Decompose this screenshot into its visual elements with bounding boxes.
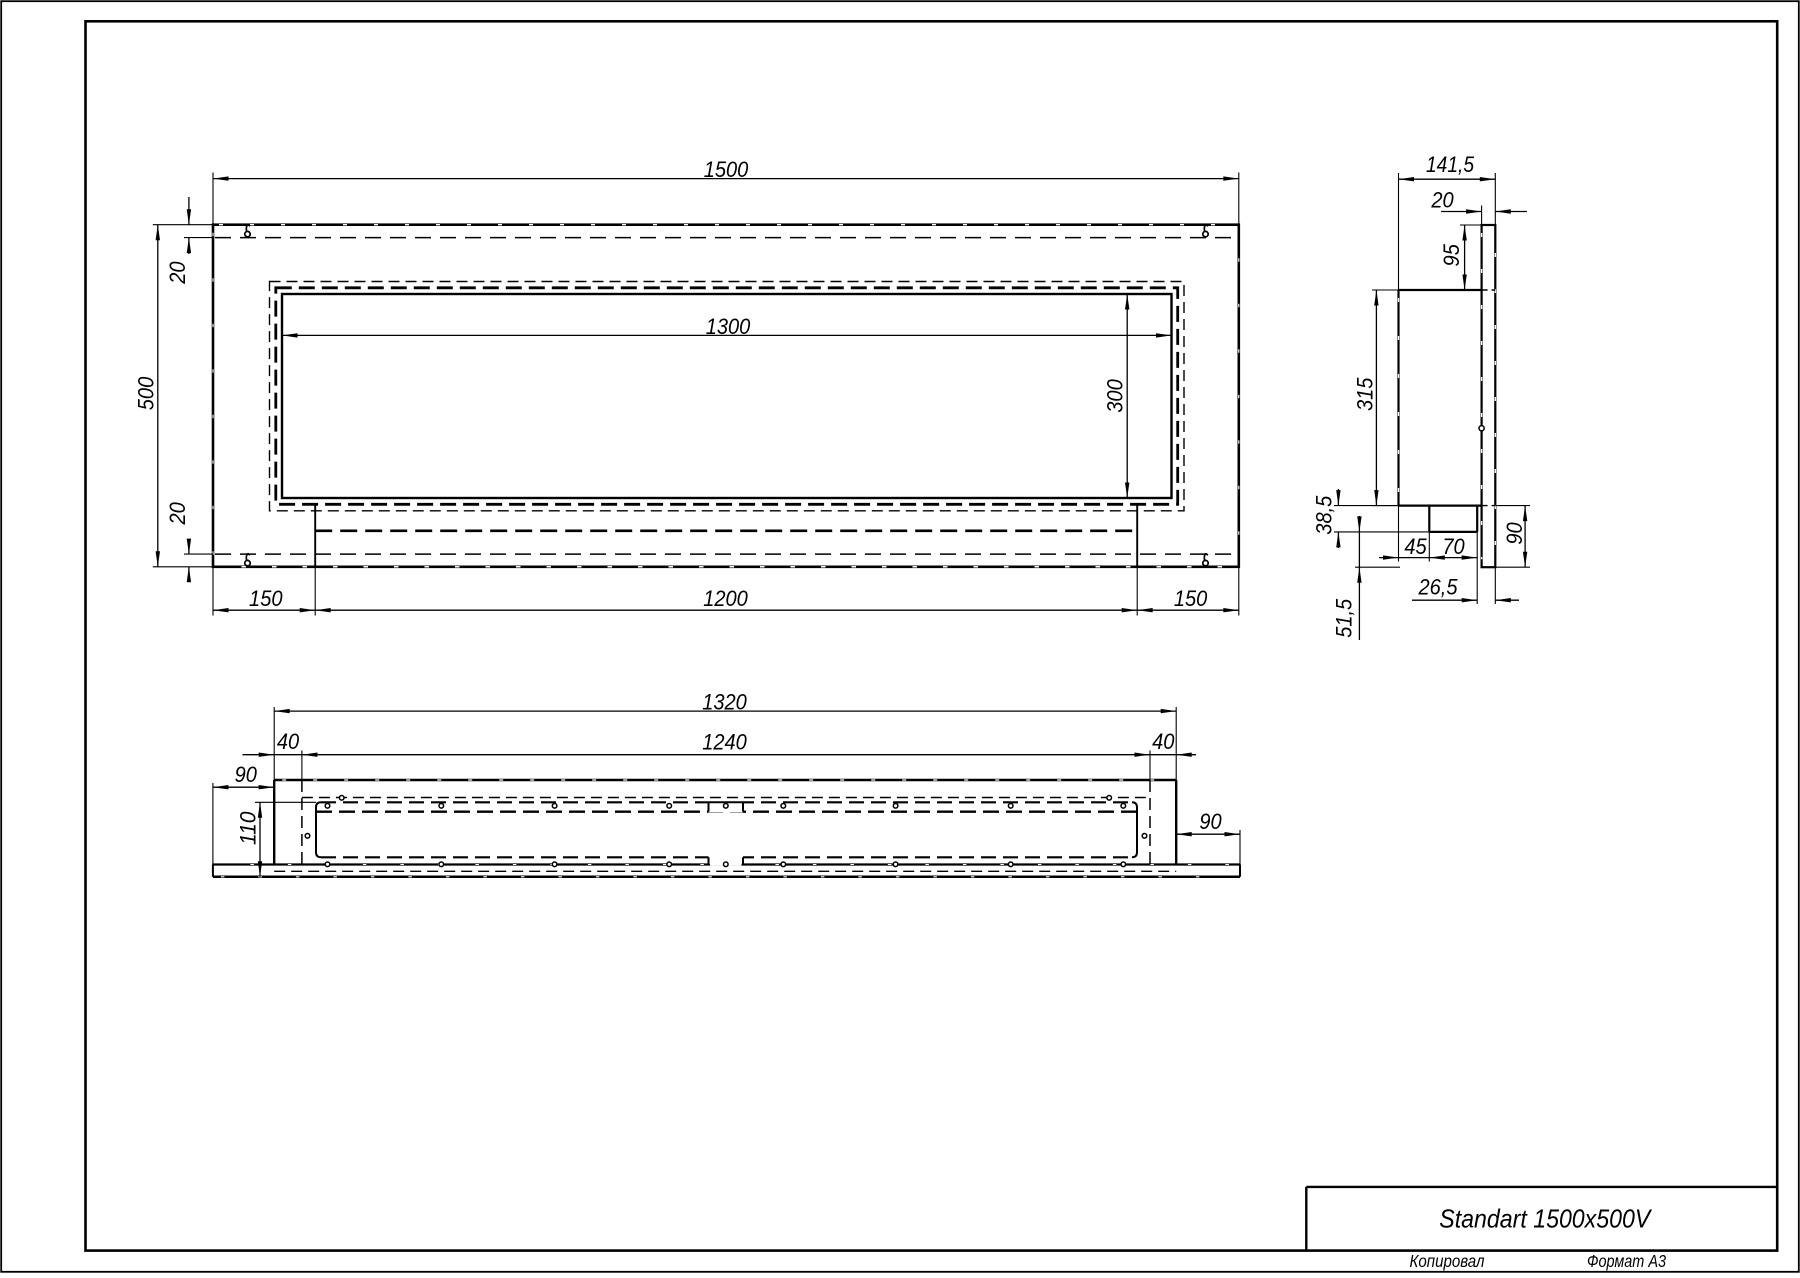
- svg-text:45: 45: [1404, 534, 1427, 559]
- svg-text:20: 20: [165, 261, 190, 285]
- svg-text:40: 40: [277, 729, 300, 754]
- svg-text:Формат А3: Формат А3: [1587, 1251, 1666, 1271]
- svg-text:315: 315: [1353, 377, 1378, 411]
- svg-text:500: 500: [134, 376, 159, 410]
- svg-text:70: 70: [1442, 534, 1465, 559]
- svg-text:1500: 1500: [704, 157, 749, 182]
- svg-text:38,5: 38,5: [1311, 495, 1336, 535]
- svg-text:40: 40: [1152, 729, 1175, 754]
- svg-text:Копировал: Копировал: [1410, 1251, 1485, 1271]
- svg-text:141,5: 141,5: [1426, 152, 1475, 177]
- svg-text:1240: 1240: [702, 730, 747, 755]
- svg-text:150: 150: [1174, 586, 1208, 611]
- svg-text:20: 20: [165, 502, 190, 526]
- svg-text:1200: 1200: [703, 586, 748, 611]
- svg-text:95: 95: [1439, 243, 1464, 266]
- svg-text:Standart 1500x500V: Standart 1500x500V: [1439, 1203, 1652, 1233]
- svg-text:90: 90: [1502, 522, 1527, 545]
- svg-text:90: 90: [235, 762, 258, 787]
- svg-text:51,5: 51,5: [1332, 598, 1357, 638]
- svg-text:20: 20: [1430, 187, 1454, 212]
- svg-text:90: 90: [1199, 809, 1222, 834]
- svg-text:26,5: 26,5: [1418, 574, 1459, 599]
- svg-text:110: 110: [236, 811, 261, 845]
- svg-text:1320: 1320: [702, 690, 747, 715]
- svg-text:300: 300: [1102, 379, 1127, 413]
- svg-text:1300: 1300: [706, 314, 751, 339]
- svg-text:150: 150: [249, 586, 283, 611]
